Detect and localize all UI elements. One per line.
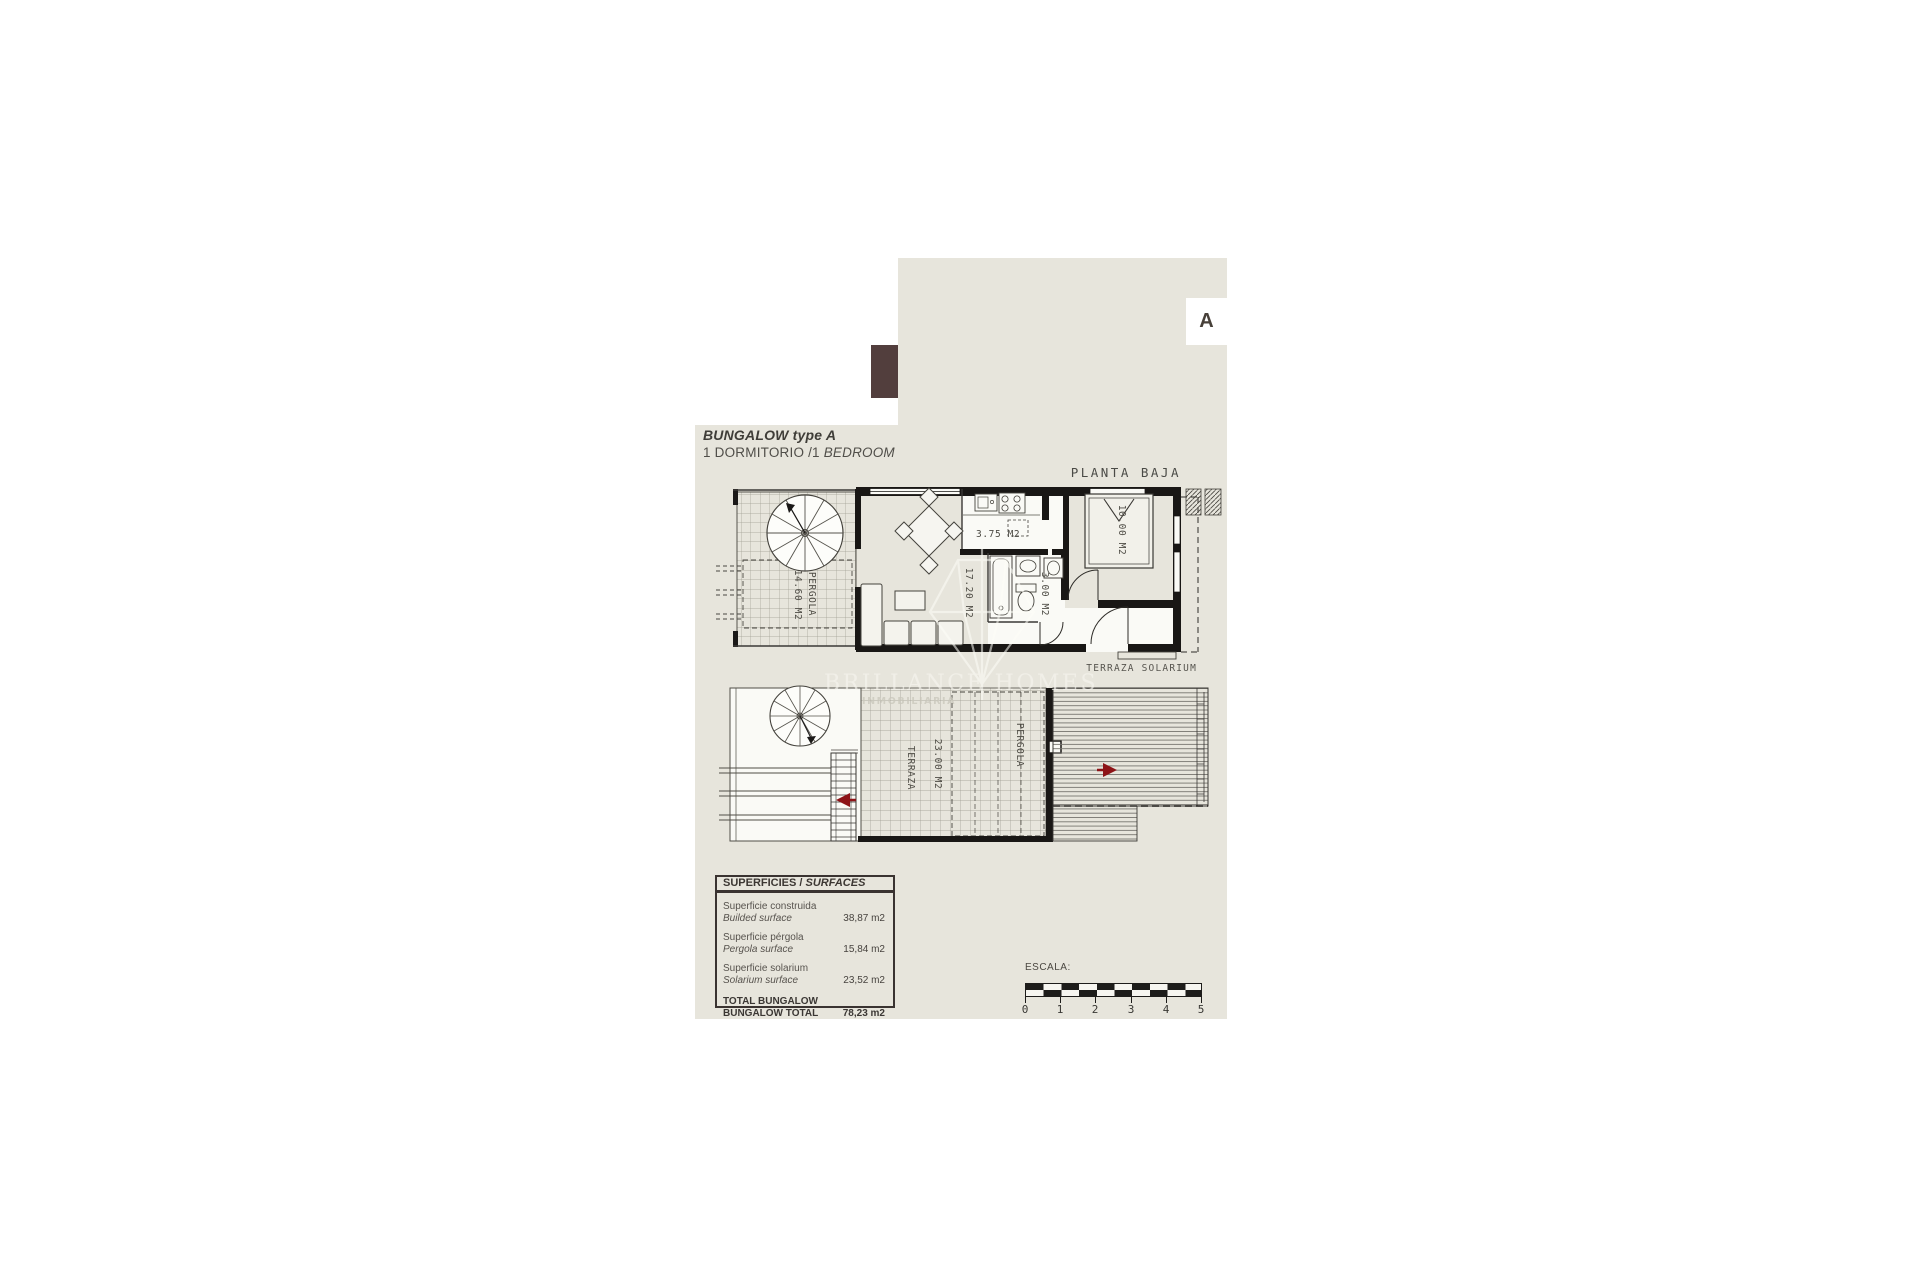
watermark-name: BRILLANCE HOMES xyxy=(824,671,1098,696)
terrace-name-label: TERRAZA xyxy=(905,746,916,790)
row-label-es: Superficie pérgola xyxy=(723,932,885,944)
row-label-es: Superficie construida xyxy=(723,901,885,913)
table-row: Superficie pérgola Pergola surface 15,84… xyxy=(723,932,885,955)
porch-step xyxy=(1118,652,1176,659)
terrace-area-label: 23.00 M2 xyxy=(932,739,943,790)
scale-bar-row-bottom xyxy=(1026,990,1201,996)
upper-pergola-label: PERGOLA xyxy=(1014,723,1025,767)
pergola-area-label: 14.60 M2 xyxy=(792,570,803,621)
row-value: 15,84 m2 xyxy=(843,944,885,956)
brochure-page: A BUNGALOW type A 1 DORMITORIO /1 BEDROO… xyxy=(0,0,1920,1280)
scale-tick-number: 0 xyxy=(1015,1003,1035,1016)
surfaces-table-header: SUPERFICIES / SURFACES xyxy=(715,875,895,892)
table-row: Superficie solarium Solarium surface 23,… xyxy=(723,963,885,986)
solarium-plan: TERRAZA 23.00 M2 PERGOLA xyxy=(719,686,1208,842)
scale-tick-number: 1 xyxy=(1050,1003,1070,1016)
neighbour-fixture xyxy=(1205,489,1221,515)
solarium-deck xyxy=(1053,688,1208,841)
scale-label: ESCALA: xyxy=(1025,962,1071,973)
watermark-tagline: INMOBILIARIA xyxy=(862,696,956,707)
total-label-es: TOTAL BUNGALOW xyxy=(723,996,885,1008)
row-value: 23,52 m2 xyxy=(843,975,885,987)
spiral-stair-ground xyxy=(767,495,843,571)
scale-tick-number: 4 xyxy=(1156,1003,1176,1016)
table-row: Superficie construida Builded surface 38… xyxy=(723,901,885,924)
scale-bar xyxy=(1025,983,1202,997)
spiral-stair-upper xyxy=(770,686,830,746)
pergola-name-label: PERGOLA xyxy=(806,572,817,616)
row-label-es: Superficie solarium xyxy=(723,963,885,975)
kitchen-area-label: 3.75 M2 xyxy=(976,529,1020,540)
surfaces-title-en: SURFACES xyxy=(802,877,865,889)
surfaces-title-es: SUPERFICIES / xyxy=(723,877,802,889)
scale-tick-number: 3 xyxy=(1121,1003,1141,1016)
neighbour-fixture xyxy=(1186,489,1201,515)
surfaces-table: Superficie construida Builded surface 38… xyxy=(715,891,895,1008)
scale-tick-number: 5 xyxy=(1191,1003,1211,1016)
dining-set xyxy=(895,488,963,574)
bedroom-area-label: 10.00 M2 xyxy=(1116,505,1127,556)
ground-pergola: PERGOLA 14.60 M2 xyxy=(716,489,858,647)
total-value: 78,23 m2 xyxy=(843,1008,885,1020)
bedroom: 10.00 M2 xyxy=(1085,494,1153,568)
row-value: 38,87 m2 xyxy=(843,913,885,925)
scale-tick-number: 2 xyxy=(1085,1003,1105,1016)
table-total-row: TOTAL BUNGALOW BUNGALOW TOTAL 78,23 m2 xyxy=(723,996,885,1019)
bath-area-label: 3.00 M2 xyxy=(1039,572,1050,616)
